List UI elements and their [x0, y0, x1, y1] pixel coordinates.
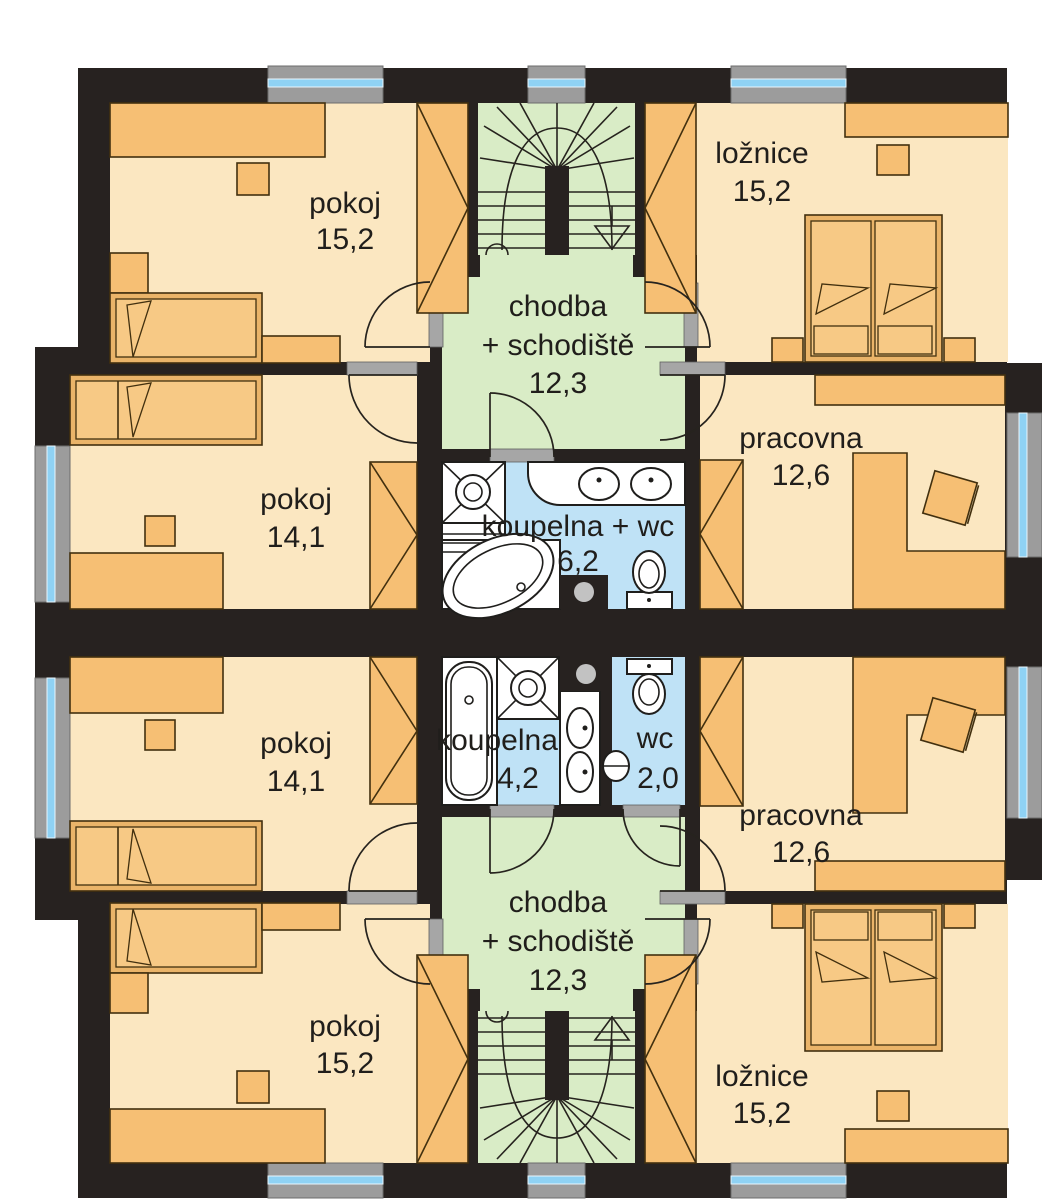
- label-u2-chodba-2: + schodiště: [482, 925, 635, 958]
- area-u2-loznice: 15,2: [733, 1097, 791, 1130]
- label-u1-pokoj-tl: pokoj: [309, 187, 381, 220]
- nightstand: [772, 338, 803, 362]
- wardrobe-tall: [370, 462, 417, 609]
- label-u1-chodba-2: + schodiště: [482, 329, 635, 362]
- bed: [70, 821, 262, 891]
- table: [145, 516, 175, 546]
- window-right-2: [1007, 667, 1042, 818]
- window-bottom-1: [268, 1163, 383, 1198]
- corner-sink-icon: [603, 751, 629, 781]
- label-u1-pracovna: pracovna: [739, 422, 863, 455]
- area-u1-chodba: 12,3: [529, 367, 587, 400]
- label-u2-chodba-1: chodba: [509, 886, 608, 919]
- bed: [110, 903, 262, 973]
- window-top-1: [268, 66, 383, 103]
- sink-icon: [579, 468, 619, 500]
- desk: [70, 553, 223, 609]
- low-cabinet: [262, 336, 340, 363]
- wardrobe-tall: [700, 657, 743, 806]
- sink-icon: [631, 468, 671, 500]
- window-left-1: [35, 446, 70, 602]
- label-u1-loznice: ložnice: [715, 137, 808, 170]
- floor-plan-canvas: pokoj 15,2 ložnice 15,2 chodba + schodiš…: [0, 0, 1042, 1200]
- window-right-1: [1007, 413, 1042, 557]
- table: [877, 145, 909, 175]
- washing-machine-icon: [497, 657, 559, 719]
- shelf: [815, 375, 1005, 405]
- window-left-2: [35, 678, 70, 838]
- bed: [110, 293, 262, 363]
- label-u2-pokoj-bl: pokoj: [309, 1010, 381, 1043]
- double-bed: [805, 215, 942, 362]
- nightstand: [110, 253, 148, 293]
- table: [237, 1071, 269, 1103]
- wardrobe-tall: [370, 657, 417, 804]
- label-u1-chodba-1: chodba: [509, 290, 608, 323]
- area-u2-pokoj-bl: 15,2: [316, 1047, 374, 1080]
- shaft-dot: [576, 664, 596, 684]
- wardrobe: [845, 103, 1008, 137]
- nightstand: [772, 904, 803, 928]
- stair-post: [545, 1011, 569, 1100]
- wardrobe-tall: [700, 460, 743, 609]
- area-u2-koupelna: 4,2: [497, 762, 539, 795]
- shaft-dot: [574, 582, 594, 602]
- area-u2-pokoj-ml: 14,1: [267, 765, 325, 798]
- nightstand: [110, 973, 148, 1013]
- bed: [70, 375, 262, 445]
- sink-icon: [567, 708, 593, 748]
- window-bottom-2: [528, 1163, 585, 1198]
- label-u2-pracovna: pracovna: [739, 799, 863, 832]
- label-u2-wc: wc: [636, 722, 674, 755]
- shelf: [815, 861, 1005, 891]
- label-u1-pokoj-ml: pokoj: [260, 483, 332, 516]
- area-u2-chodba: 12,3: [529, 964, 587, 997]
- double-bed: [805, 904, 942, 1051]
- area-u1-loznice: 15,2: [733, 175, 791, 208]
- label-u2-koupelna: koupelna: [436, 724, 558, 757]
- area-u2-wc: 2,0: [637, 762, 679, 795]
- room-u1-stairs-connector: [480, 252, 633, 277]
- nightstand: [944, 338, 975, 362]
- label-u2-loznice: ložnice: [715, 1060, 808, 1093]
- area-u2-pracovna: 12,6: [772, 836, 830, 869]
- label-u1-koupelna: koupelna + wc: [482, 510, 675, 543]
- window-top-3: [731, 66, 846, 103]
- wardrobe-tall: [645, 103, 696, 313]
- area-u1-pracovna: 12,6: [772, 459, 830, 492]
- table: [145, 720, 175, 750]
- low-cabinet: [262, 903, 340, 930]
- wardrobe-tall: [417, 955, 468, 1163]
- area-u1-koupelna: 6,2: [557, 545, 599, 578]
- floor-plan: pokoj 15,2 ložnice 15,2 chodba + schodiš…: [0, 0, 1042, 1200]
- table: [237, 163, 269, 195]
- nightstand: [944, 904, 975, 928]
- wardrobe: [845, 1129, 1008, 1163]
- label-u2-pokoj-ml: pokoj: [260, 727, 332, 760]
- wardrobe-tall: [645, 955, 696, 1163]
- window-bottom-3: [731, 1163, 846, 1198]
- area-u1-pokoj-tl: 15,2: [316, 223, 374, 256]
- wardrobe: [110, 103, 325, 157]
- wardrobe: [110, 1109, 325, 1163]
- sink-icon: [567, 752, 593, 792]
- window-top-2: [528, 66, 585, 103]
- stair-post: [545, 166, 569, 255]
- area-u1-pokoj-ml: 14,1: [267, 521, 325, 554]
- desk: [70, 657, 223, 713]
- table: [877, 1091, 909, 1121]
